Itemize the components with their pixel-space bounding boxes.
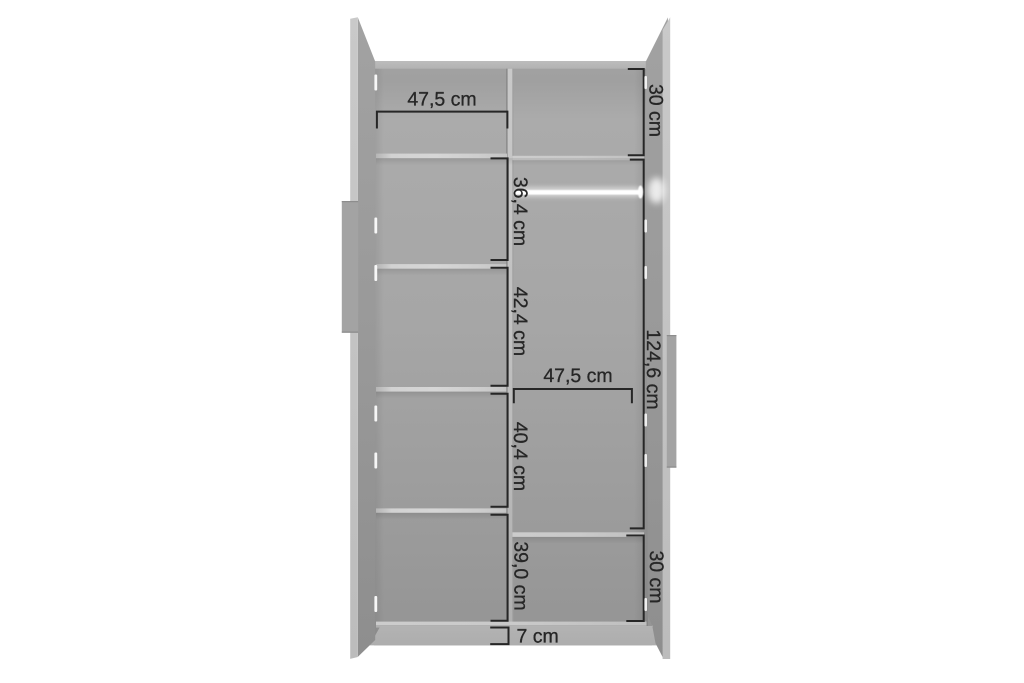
svg-text:7 cm: 7 cm — [517, 626, 559, 648]
svg-text:30 cm: 30 cm — [645, 550, 667, 603]
svg-text:47,5 cm: 47,5 cm — [407, 89, 476, 111]
svg-text:36,4 cm: 36,4 cm — [509, 177, 531, 246]
svg-text:47,5 cm: 47,5 cm — [543, 365, 612, 387]
svg-text:42,4 cm: 42,4 cm — [509, 287, 531, 356]
svg-text:30 cm: 30 cm — [645, 84, 667, 137]
svg-text:39,0 cm: 39,0 cm — [510, 541, 532, 610]
svg-text:40,4 cm: 40,4 cm — [509, 422, 531, 491]
svg-text:124,6 cm: 124,6 cm — [642, 329, 664, 409]
